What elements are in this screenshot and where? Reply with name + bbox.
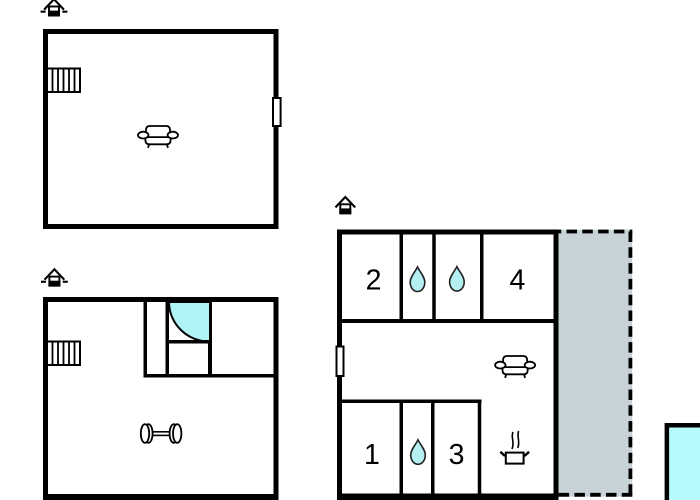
svg-text:2: 2	[366, 265, 382, 297]
svg-text:3: 3	[449, 439, 465, 471]
svg-text:4: 4	[509, 265, 525, 297]
svg-text:1: 1	[364, 439, 380, 471]
